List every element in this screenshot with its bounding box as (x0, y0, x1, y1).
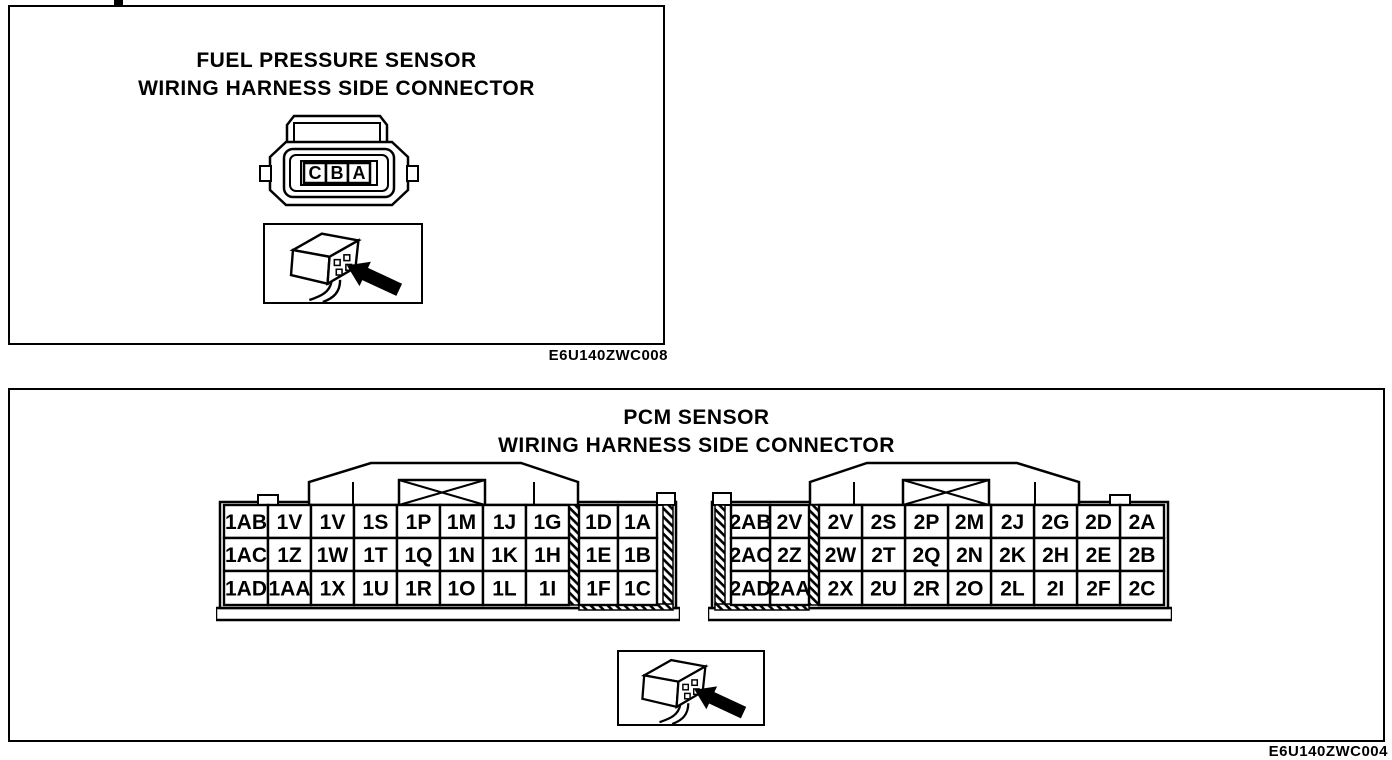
connector-plug-arrow-icon (265, 225, 421, 302)
pin-label: 1AD (225, 578, 267, 601)
pin-label: 1F (586, 578, 611, 601)
pin-label: 2J (1001, 511, 1024, 534)
pin-label: 2E (1086, 544, 1112, 567)
pin-label: 2AD (729, 578, 771, 601)
fuel-connector-face-icon: C B A (257, 112, 437, 212)
pin-label-b: B (331, 163, 344, 183)
top-tab (657, 493, 675, 505)
pin-label: 1P (406, 511, 432, 534)
pin-label: 2O (955, 578, 983, 601)
pin-label: 2Q (912, 544, 940, 567)
pin-label: 2U (870, 578, 897, 601)
pin-label: 1M (447, 511, 476, 534)
pin-label: 2D (1085, 511, 1112, 534)
pin-label: 1J (493, 511, 516, 534)
connector-plug-arrow-icon (619, 652, 763, 724)
pcm-title-line2: WIRING HARNESS SIDE CONNECTOR (10, 432, 1383, 460)
pin-label: 2M (955, 511, 984, 534)
fuel-connector-drawing: C B A (257, 112, 437, 212)
pin-label: 2G (1041, 511, 1069, 534)
pin-label: 2V (777, 511, 803, 534)
pcm-sensor-panel: PCM SENSOR WIRING HARNESS SIDE CONNECTOR… (8, 388, 1385, 742)
pin-label: 2N (956, 544, 983, 567)
pin-label: 2AB (729, 511, 771, 534)
hatched-edge (715, 505, 725, 605)
figure-code-fuel: E6U140ZWC008 (438, 348, 668, 364)
pin-label: 2T (871, 544, 896, 567)
pin-label: 1L (492, 578, 517, 601)
pin-label: 1K (491, 544, 518, 567)
pcm-view-direction-box (617, 650, 765, 726)
pin-label: 1O (447, 578, 475, 601)
pin-label: 2P (914, 511, 940, 534)
pin-label: 2K (999, 544, 1026, 567)
top-tab (258, 495, 278, 505)
pin-label: 2AC (729, 544, 771, 567)
pin-label: 1Q (404, 544, 432, 567)
pin-label: 1X (320, 578, 346, 601)
fuel-title-line1: FUEL PRESSURE SENSOR (10, 47, 663, 75)
pin-label: 2R (913, 578, 940, 601)
pin-label: 2W (825, 544, 857, 567)
left-tab-icon (260, 166, 271, 181)
pin-label: 1N (448, 544, 475, 567)
pcm-connector-2-icon: 2A2D2G2J2M2P2S2V2V2AB2B2E2H2K2N2Q2T2W2Z2… (708, 458, 1172, 622)
top-tab (713, 493, 731, 505)
pin-label: 1W (317, 544, 349, 567)
pin-label: 1V (277, 511, 303, 534)
pin-label-a: A (353, 163, 366, 183)
pin-label: 2A (1129, 511, 1156, 534)
pin-label-c: C (309, 163, 322, 183)
pin-label: 2S (871, 511, 897, 534)
pin-label: 2C (1129, 578, 1156, 601)
pin-label: 1D (585, 511, 612, 534)
pin-label: 2L (1000, 578, 1025, 601)
fuel-view-direction-box (263, 223, 423, 304)
pin-label: 1S (363, 511, 389, 534)
figure-code-pcm: E6U140ZWC004 (1158, 744, 1388, 760)
pin-label: 1C (624, 578, 651, 601)
pin-label: 2V (828, 511, 854, 534)
pin-label: 1R (405, 578, 432, 601)
pin-label: 1H (534, 544, 561, 567)
pin-label: 2I (1047, 578, 1065, 601)
pin-label: 1T (363, 544, 388, 567)
pin-label: 2Z (777, 544, 802, 567)
pcm-connector-1-icon: 1AB1V1V1S1P1M1J1G1D1A1AC1Z1W1T1Q1N1K1H1E… (216, 458, 680, 622)
pin-label: 1A (624, 511, 651, 534)
pin-label: 1AA (268, 578, 310, 601)
pin-label: 1AC (225, 544, 267, 567)
scanned-wiring-diagram-page: { "colors": { "ink": "#000000", "paper":… (0, 0, 1392, 760)
pin-label: 1B (624, 544, 651, 567)
pin-label: 1I (539, 578, 557, 601)
top-tab (1110, 495, 1130, 505)
pcm-connector-1-drawing: 1AB1V1V1S1P1M1J1G1D1A1AC1Z1W1T1Q1N1K1H1E… (216, 458, 680, 622)
pin-label: 1U (362, 578, 389, 601)
hatched-edge (663, 505, 673, 605)
pcm-title-line1: PCM SENSOR (10, 404, 1383, 432)
pin-label: 1Z (277, 544, 302, 567)
fuel-title-line2: WIRING HARNESS SIDE CONNECTOR (10, 75, 663, 103)
pcm-panel-title: PCM SENSOR WIRING HARNESS SIDE CONNECTOR (10, 404, 1383, 460)
pin-label: 1G (533, 511, 561, 534)
pin-label: 2X (828, 578, 854, 601)
pin-label: 2F (1086, 578, 1111, 601)
fuel-pressure-sensor-panel: FUEL PRESSURE SENSOR WIRING HARNESS SIDE… (8, 5, 665, 345)
right-tab-icon (407, 166, 418, 181)
hatched-divider (569, 505, 579, 605)
pin-label: 1V (320, 511, 346, 534)
fuel-panel-title: FUEL PRESSURE SENSOR WIRING HARNESS SIDE… (10, 47, 663, 103)
pin-label: 1AB (225, 511, 267, 534)
pin-label: 2AA (768, 578, 810, 601)
pcm-connector-2-drawing: 2A2D2G2J2M2P2S2V2V2AB2B2E2H2K2N2Q2T2W2Z2… (708, 458, 1172, 622)
pin-label: 2B (1129, 544, 1156, 567)
pin-label: 2H (1042, 544, 1069, 567)
pin-label: 1E (586, 544, 612, 567)
